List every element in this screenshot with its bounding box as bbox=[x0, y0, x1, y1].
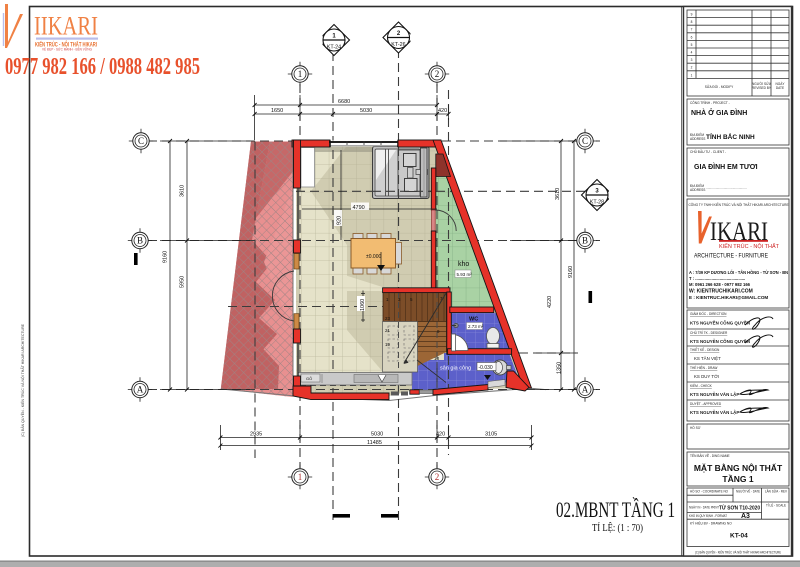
svg-text:4790: 4790 bbox=[353, 205, 365, 211]
svg-text:1: 1 bbox=[298, 69, 303, 79]
svg-text:19: 19 bbox=[385, 342, 391, 347]
svg-text:THIẾT KẾ - DESIGN: THIẾT KẾ - DESIGN bbox=[690, 347, 720, 352]
svg-text:23: 23 bbox=[385, 316, 391, 321]
svg-text:(C) BẢN QUYỀN - KIẾN TRÚC VÀ N: (C) BẢN QUYỀN - KIẾN TRÚC VÀ NỘI THẤT HI… bbox=[20, 323, 25, 437]
svg-text:2: 2 bbox=[435, 472, 440, 482]
svg-text:±0.000: ±0.000 bbox=[366, 254, 381, 260]
svg-text:KÝ HIỆU BV - DRAWING NO: KÝ HIỆU BV - DRAWING NO bbox=[690, 521, 732, 526]
svg-text:M: 0961 266 628 - 0977 982 166: M: 0961 266 628 - 0977 982 166 bbox=[689, 282, 751, 287]
svg-text:GỖ: GỖ bbox=[306, 376, 312, 381]
svg-text:DATE: DATE bbox=[776, 86, 784, 90]
svg-text:2: 2 bbox=[435, 69, 440, 79]
svg-text:KS DUY TỚI: KS DUY TỚI bbox=[694, 374, 719, 379]
svg-text:KIỂM - CHECK: KIỂM - CHECK bbox=[690, 383, 713, 388]
svg-text:2935: 2935 bbox=[250, 432, 262, 438]
svg-text:1350: 1350 bbox=[557, 362, 563, 374]
svg-text:3610: 3610 bbox=[555, 188, 561, 200]
svg-text:2.73 m²: 2.73 m² bbox=[468, 324, 484, 329]
svg-text:11485: 11485 bbox=[367, 440, 382, 446]
svg-text:KT-28: KT-28 bbox=[590, 200, 604, 206]
svg-text:B: B bbox=[137, 236, 143, 246]
svg-text:KT-26: KT-26 bbox=[391, 42, 405, 48]
svg-text:5.93 m²: 5.93 m² bbox=[457, 272, 473, 277]
svg-text:6: 6 bbox=[691, 35, 693, 39]
svg-text:KIẾN TRÚC - NỘI THẤT: KIẾN TRÚC - NỘI THẤT bbox=[719, 243, 780, 250]
svg-text:8: 8 bbox=[691, 20, 693, 24]
svg-text:5030: 5030 bbox=[360, 108, 372, 114]
svg-text:E : KIENTRUC.HIKARI@GMAIL.COM: E : KIENTRUC.HIKARI@GMAIL.COM bbox=[689, 295, 768, 300]
svg-text:420: 420 bbox=[438, 108, 447, 114]
svg-text:SỬA ĐỔI - MODIFY: SỬA ĐỔI - MODIFY bbox=[705, 84, 734, 89]
svg-text:W: KIENTRUCHIKARI.COM: W: KIENTRUCHIKARI.COM bbox=[689, 289, 753, 295]
svg-text:KT-24: KT-24 bbox=[327, 45, 341, 51]
svg-text:5950: 5950 bbox=[180, 276, 186, 288]
svg-text:NGÀY IN - DATE PRINT: NGÀY IN - DATE PRINT bbox=[689, 506, 719, 510]
svg-text:LẦN SỬA - REV: LẦN SỬA - REV bbox=[765, 489, 788, 494]
svg-text:-0.030: -0.030 bbox=[479, 365, 493, 371]
svg-text:1060: 1060 bbox=[360, 299, 366, 311]
svg-text:MẶT BẰNG NỘI THẤT: MẶT BẰNG NỘI THẤT bbox=[694, 462, 783, 473]
svg-text:KS TÂN VIỆT: KS TÂN VIỆT bbox=[694, 356, 721, 361]
svg-text:A : 7/39 KP DƯƠNG LỖI - TÂN HỒ: A : 7/39 KP DƯƠNG LỖI - TÂN HỒNG - TỪ SƠ… bbox=[689, 270, 788, 275]
svg-text:GIA ĐÌNH EM TƯƠI: GIA ĐÌNH EM TƯƠI bbox=[694, 162, 758, 171]
svg-text:HỒ SƠ - COORDINATE NO: HỒ SƠ - COORDINATE NO bbox=[690, 489, 728, 494]
svg-text:CHỦ ĐẦU TƯ - CLIENT -: CHỦ ĐẦU TƯ - CLIENT - bbox=[690, 149, 726, 154]
svg-text:3: 3 bbox=[691, 58, 693, 62]
svg-text:TÊN BẢN VẼ - DWG NAME: TÊN BẢN VẼ - DWG NAME bbox=[690, 453, 730, 458]
svg-text:4220: 4220 bbox=[547, 296, 553, 308]
svg-text:A3: A3 bbox=[741, 513, 750, 520]
svg-text:(C) BẢN QUYỀN - KIẾN TRÚC VÀ N: (C) BẢN QUYỀN - KIẾN TRÚC VÀ NỘI THẤT HI… bbox=[695, 550, 781, 555]
svg-text:1: 1 bbox=[298, 472, 303, 482]
svg-text:5030: 5030 bbox=[371, 432, 383, 438]
svg-text:KTS NGUYỄN VĂN LẬP: KTS NGUYỄN VĂN LẬP bbox=[690, 410, 739, 415]
svg-text:..............................: ........................................… bbox=[706, 186, 747, 190]
svg-text:3105: 3105 bbox=[485, 432, 497, 438]
svg-text:1650: 1650 bbox=[271, 108, 283, 114]
svg-text:NHÀ Ở GIA ĐÌNH: NHÀ Ở GIA ĐÌNH bbox=[691, 108, 747, 117]
svg-text:B: B bbox=[582, 236, 588, 246]
svg-text:ARCHITECTURE - FURNITURE: ARCHITECTURE - FURNITURE bbox=[694, 254, 768, 260]
svg-text:VẺ ĐẸP - SỨC MẠNH - BỀN VỮNG: VẺ ĐẸP - SỨC MẠNH - BỀN VỮNG bbox=[42, 47, 92, 52]
svg-text:KTS NGUYỄN CÔNG QUYỀN: KTS NGUYỄN CÔNG QUYỀN bbox=[690, 339, 750, 344]
svg-text:ADDRESS: ADDRESS bbox=[690, 188, 705, 192]
svg-text:CÔNG TRÌNH - PROJECT -: CÔNG TRÌNH - PROJECT - bbox=[690, 100, 730, 105]
svg-text:5: 5 bbox=[691, 43, 693, 47]
svg-text:CHỦ TRÌ TK - DESIGNER: CHỦ TRÌ TK - DESIGNER bbox=[690, 330, 728, 335]
svg-text:KTS NGUYỄN VĂN LẬP: KTS NGUYỄN VĂN LẬP bbox=[690, 392, 739, 397]
svg-text:IIKARI: IIKARI bbox=[34, 12, 98, 41]
svg-text:3610: 3610 bbox=[180, 185, 186, 197]
svg-text:02.MBNT TẦNG 1: 02.MBNT TẦNG 1 bbox=[556, 497, 675, 522]
svg-text:HỒ SƠ: HỒ SƠ bbox=[690, 425, 701, 430]
svg-text:9160: 9160 bbox=[568, 266, 574, 278]
svg-text:GIÁM ĐỐC - DIRECTION: GIÁM ĐỐC - DIRECTION bbox=[690, 311, 727, 316]
svg-text:C: C bbox=[138, 136, 144, 146]
svg-text:KT-04: KT-04 bbox=[730, 533, 748, 540]
svg-text:9: 9 bbox=[691, 13, 693, 17]
svg-text:7: 7 bbox=[691, 28, 693, 32]
svg-text:21: 21 bbox=[385, 328, 391, 333]
svg-text:C: C bbox=[582, 136, 588, 146]
svg-text:13: 13 bbox=[434, 356, 440, 361]
svg-text:TỈ LỆ: (1 : 70): TỈ LỆ: (1 : 70) bbox=[592, 522, 643, 534]
svg-text:WC: WC bbox=[469, 317, 478, 323]
svg-text:1: 1 bbox=[691, 73, 693, 77]
svg-text:KTS NGUYỄN CÔNG QUYỀN: KTS NGUYỄN CÔNG QUYỀN bbox=[690, 321, 750, 326]
svg-text:0977 982 166 / 0988 482 985: 0977 982 166 / 0988 482 985 bbox=[5, 54, 200, 80]
svg-text:T : ..........................: T : ....................................… bbox=[689, 276, 745, 281]
svg-text:sân gia công: sân gia công bbox=[440, 366, 471, 372]
svg-text:TỈNH BẮC NINH: TỈNH BẮC NINH bbox=[706, 132, 755, 141]
svg-text:NGƯỜI VẼ - DATE: NGƯỜI VẼ - DATE bbox=[736, 489, 760, 494]
svg-text:TẦNG 1: TẦNG 1 bbox=[722, 474, 753, 484]
svg-text:CÔNG TY TNHH KIẾN TRÚC VÀ NỘI: CÔNG TY TNHH KIẾN TRÚC VÀ NỘI THẤT HIKAR… bbox=[689, 202, 789, 207]
svg-text:THỂ HIỆN - DRAW: THỂ HIỆN - DRAW bbox=[690, 365, 717, 370]
svg-text:920: 920 bbox=[337, 216, 343, 225]
svg-text:kho: kho bbox=[458, 261, 469, 268]
svg-text:6680: 6680 bbox=[338, 99, 350, 105]
svg-text:A: A bbox=[582, 385, 589, 395]
svg-text:2: 2 bbox=[691, 66, 693, 70]
svg-text:TỈ LỆ - SCALE: TỈ LỆ - SCALE bbox=[766, 503, 786, 508]
svg-text:4: 4 bbox=[691, 51, 693, 55]
svg-text:9160: 9160 bbox=[163, 251, 169, 263]
svg-text:A: A bbox=[137, 385, 144, 395]
svg-text:KHỔ IN QUY ĐỊNH - FORMAT: KHỔ IN QUY ĐỊNH - FORMAT bbox=[689, 513, 727, 518]
svg-text:REVISED BY: REVISED BY bbox=[752, 86, 772, 90]
svg-text:ADDRESS: ADDRESS bbox=[690, 137, 705, 141]
svg-text:DUYỆT - APPROVED: DUYỆT - APPROVED bbox=[690, 401, 722, 406]
svg-text:TỪ SƠN T10-2020: TỪ SƠN T10-2020 bbox=[719, 505, 760, 512]
